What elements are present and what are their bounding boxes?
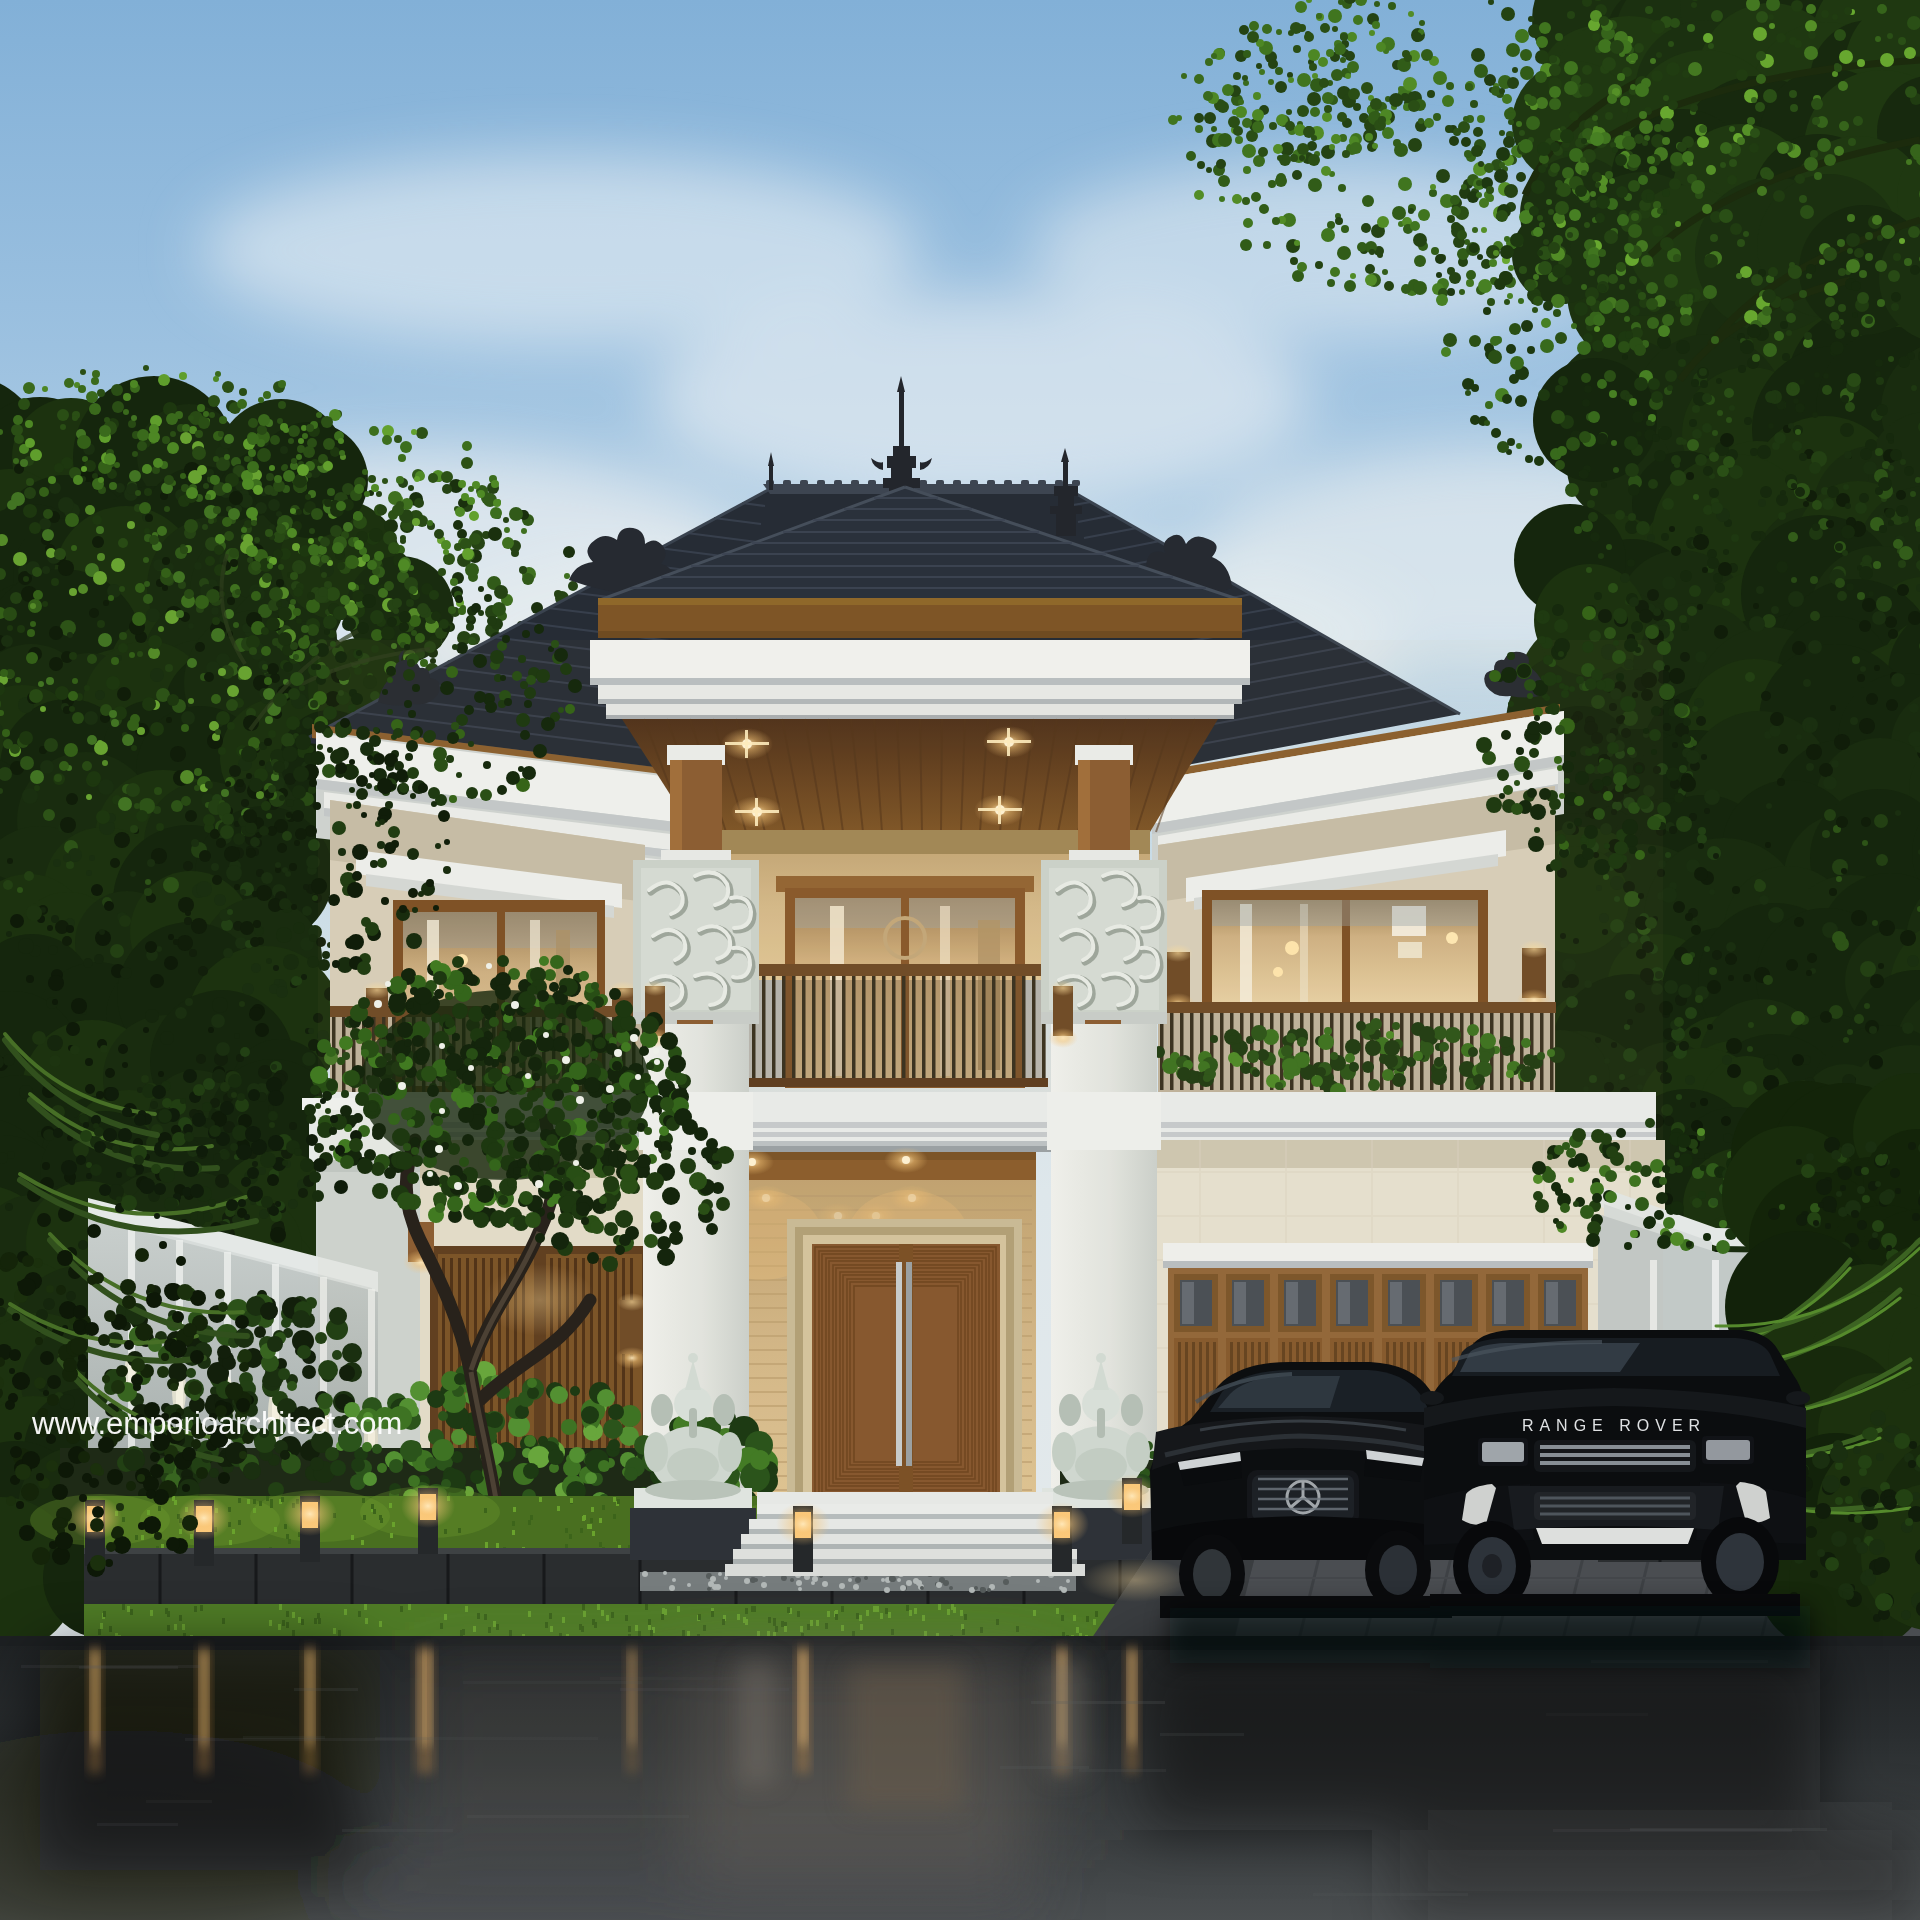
svg-text:RANGE ROVER: RANGE ROVER [1522,1417,1706,1434]
svg-text:www.emporioarchitect.com: www.emporioarchitect.com [31,1406,402,1441]
